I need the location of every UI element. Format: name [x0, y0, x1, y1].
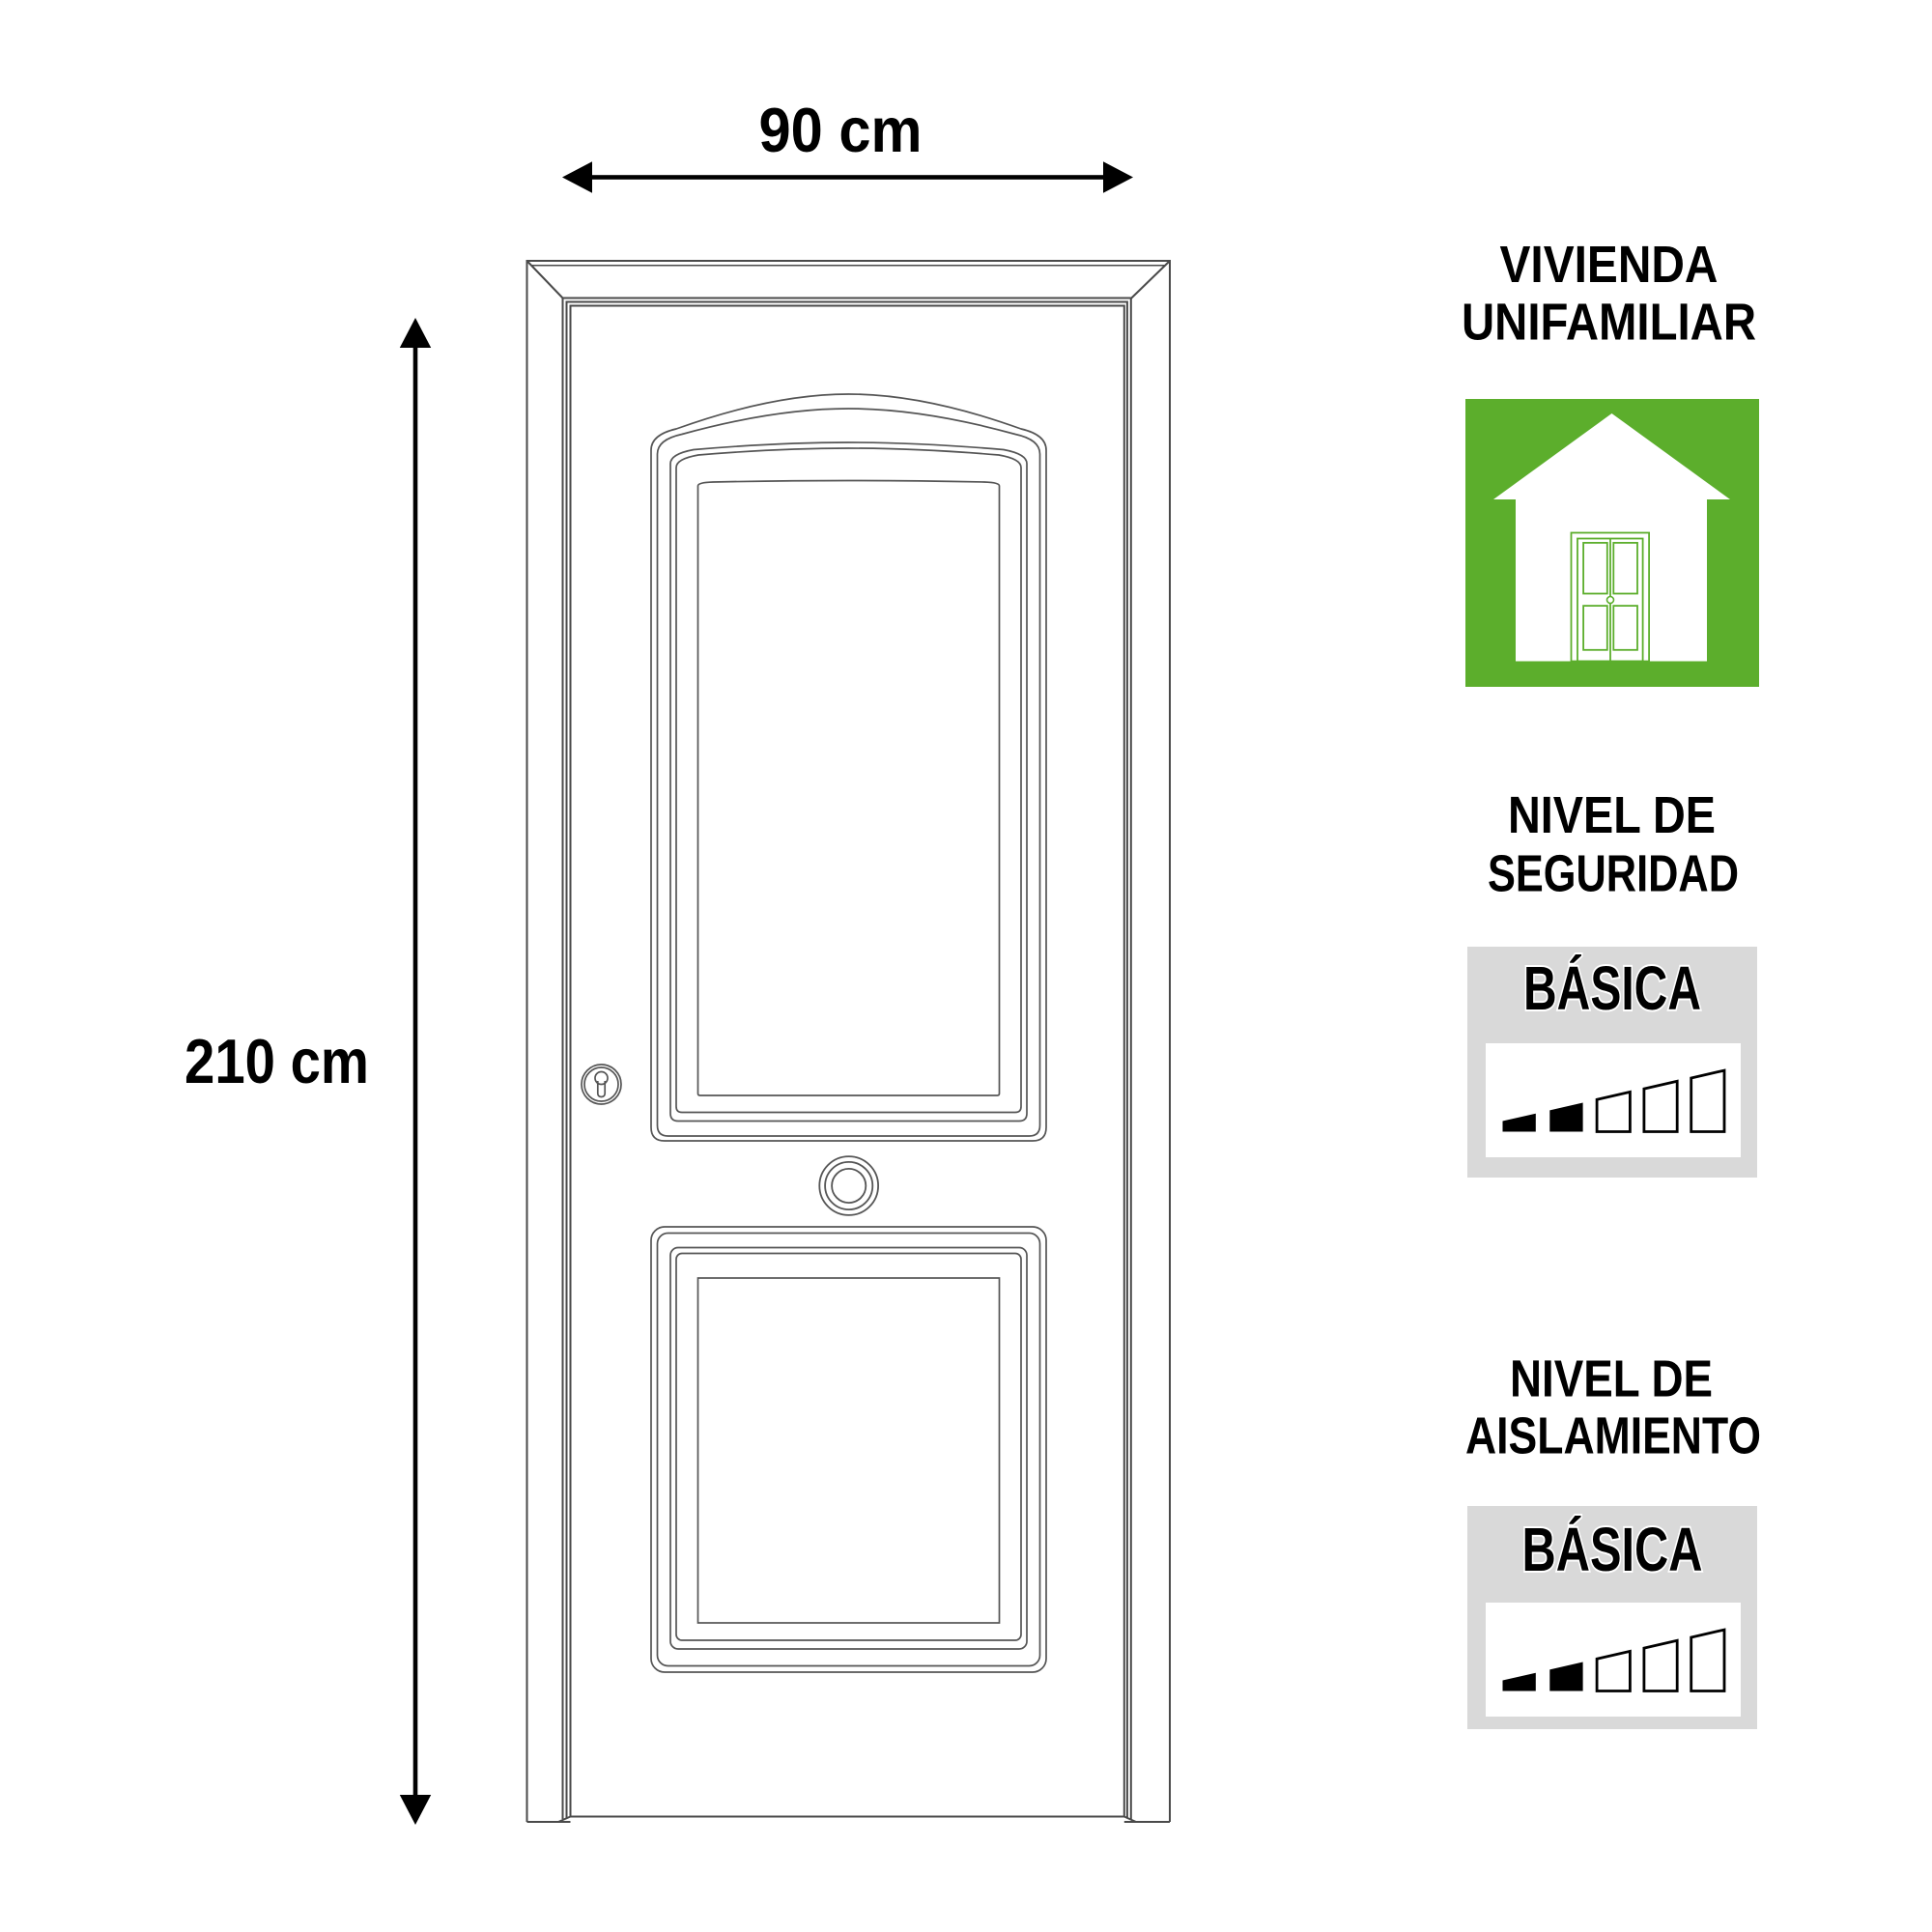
svg-text:SEGURIDAD: SEGURIDAD: [1488, 845, 1739, 903]
svg-text:BÁSICA: BÁSICA: [1522, 1515, 1703, 1584]
svg-text:90 cm: 90 cm: [759, 95, 923, 165]
svg-text:BÁSICA: BÁSICA: [1523, 953, 1701, 1023]
svg-text:210 cm: 210 cm: [185, 1026, 369, 1096]
svg-text:NIVEL DE: NIVEL DE: [1510, 1350, 1713, 1407]
svg-text:NIVEL DE: NIVEL DE: [1508, 786, 1716, 844]
svg-text:AISLAMIENTO: AISLAMIENTO: [1465, 1406, 1761, 1464]
svg-text:UNIFAMILIAR: UNIFAMILIAR: [1462, 294, 1756, 352]
svg-text:VIVIENDA: VIVIENDA: [1500, 236, 1719, 294]
